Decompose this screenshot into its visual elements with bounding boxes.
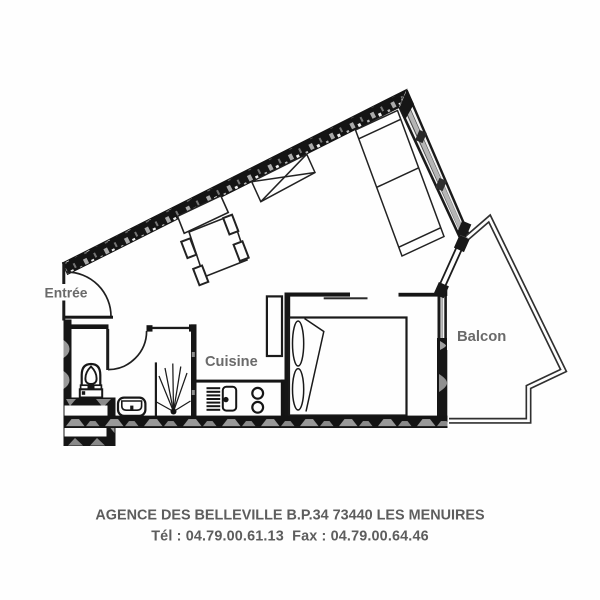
- svg-text:AGENCE DES BELLEVILLE B.P.34 7: AGENCE DES BELLEVILLE B.P.34 73440 LES M…: [95, 508, 485, 524]
- svg-text:Cuisine: Cuisine: [205, 354, 258, 370]
- svg-text:Entrée: Entrée: [45, 286, 88, 301]
- svg-text:Tél : 04.79.00.61.13 Fax : 04: Tél : 04.79.00.61.13 Fax : 04.79.00.64.4…: [151, 529, 429, 545]
- svg-text:Balcon: Balcon: [457, 329, 506, 345]
